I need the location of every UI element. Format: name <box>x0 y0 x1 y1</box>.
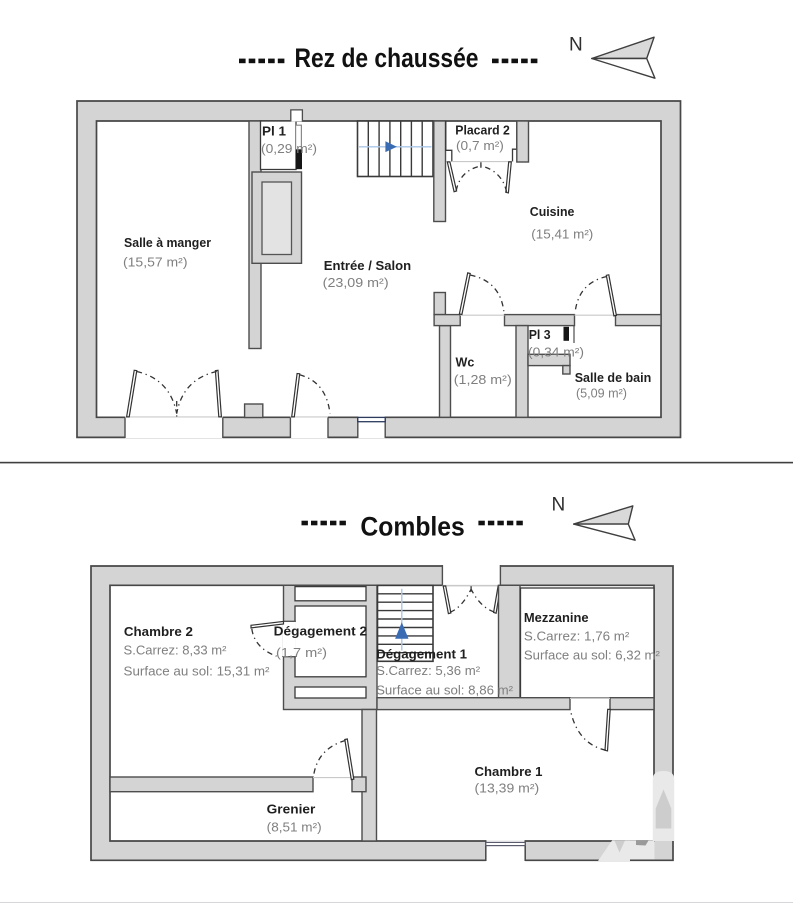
svg-text:Mezzanine: Mezzanine <box>524 610 589 625</box>
svg-text:Dégagement 1: Dégagement 1 <box>376 647 467 662</box>
svg-text:Salle à manger: Salle à manger <box>124 235 211 250</box>
svg-text:(1,7 m²): (1,7 m²) <box>276 645 327 660</box>
svg-text:S.Carrez: 8,33 m²: S.Carrez: 8,33 m² <box>124 643 228 658</box>
svg-text:(0,34 m²): (0,34 m²) <box>528 345 584 360</box>
svg-text:Wc: Wc <box>456 355 475 370</box>
svg-text:Chambre 1: Chambre 1 <box>475 764 543 779</box>
svg-text:N: N <box>569 35 583 56</box>
svg-text:(15,41 m²): (15,41 m²) <box>531 227 593 242</box>
svg-text:Pl 3: Pl 3 <box>529 327 551 342</box>
svg-text:Combles: Combles <box>360 512 464 542</box>
svg-text:Cuisine: Cuisine <box>530 204 575 219</box>
svg-text:(8,51 m²): (8,51 m²) <box>267 820 322 835</box>
svg-text:Grenier: Grenier <box>267 802 316 817</box>
svg-text:(1,28 m²): (1,28 m²) <box>454 372 512 387</box>
svg-text:(23,09 m²): (23,09 m²) <box>323 275 389 290</box>
svg-text:Entrée / Salon: Entrée / Salon <box>324 258 411 273</box>
svg-text:Pl 1: Pl 1 <box>262 124 286 139</box>
svg-text:Surface au sol: 15,31 m²: Surface au sol: 15,31 m² <box>124 664 271 679</box>
svg-text:Surface au sol: 8,86 m²: Surface au sol: 8,86 m² <box>376 683 514 698</box>
svg-text:N: N <box>552 495 566 516</box>
svg-text:(0,29 m²): (0,29 m²) <box>261 141 317 156</box>
svg-text:Rez de chaussée: Rez de chaussée <box>295 43 479 73</box>
svg-text:(0,7 m²): (0,7 m²) <box>456 138 504 153</box>
svg-text:Salle de bain: Salle de bain <box>575 370 652 385</box>
svg-text:(13,39 m²): (13,39 m²) <box>475 781 540 796</box>
svg-text:(15,57 m²): (15,57 m²) <box>123 255 188 270</box>
svg-text:Dégagement 2: Dégagement 2 <box>274 624 367 639</box>
svg-text:(5,09 m²): (5,09 m²) <box>576 386 627 401</box>
svg-text:S.Carrez: 1,76 m²: S.Carrez: 1,76 m² <box>524 629 630 644</box>
svg-text:Placard 2: Placard 2 <box>455 123 510 138</box>
svg-text:S.Carrez: 5,36 m²: S.Carrez: 5,36 m² <box>376 663 481 678</box>
svg-text:Chambre 2: Chambre 2 <box>124 624 193 639</box>
svg-text:Surface au sol: 6,32 m²: Surface au sol: 6,32 m² <box>524 648 661 663</box>
